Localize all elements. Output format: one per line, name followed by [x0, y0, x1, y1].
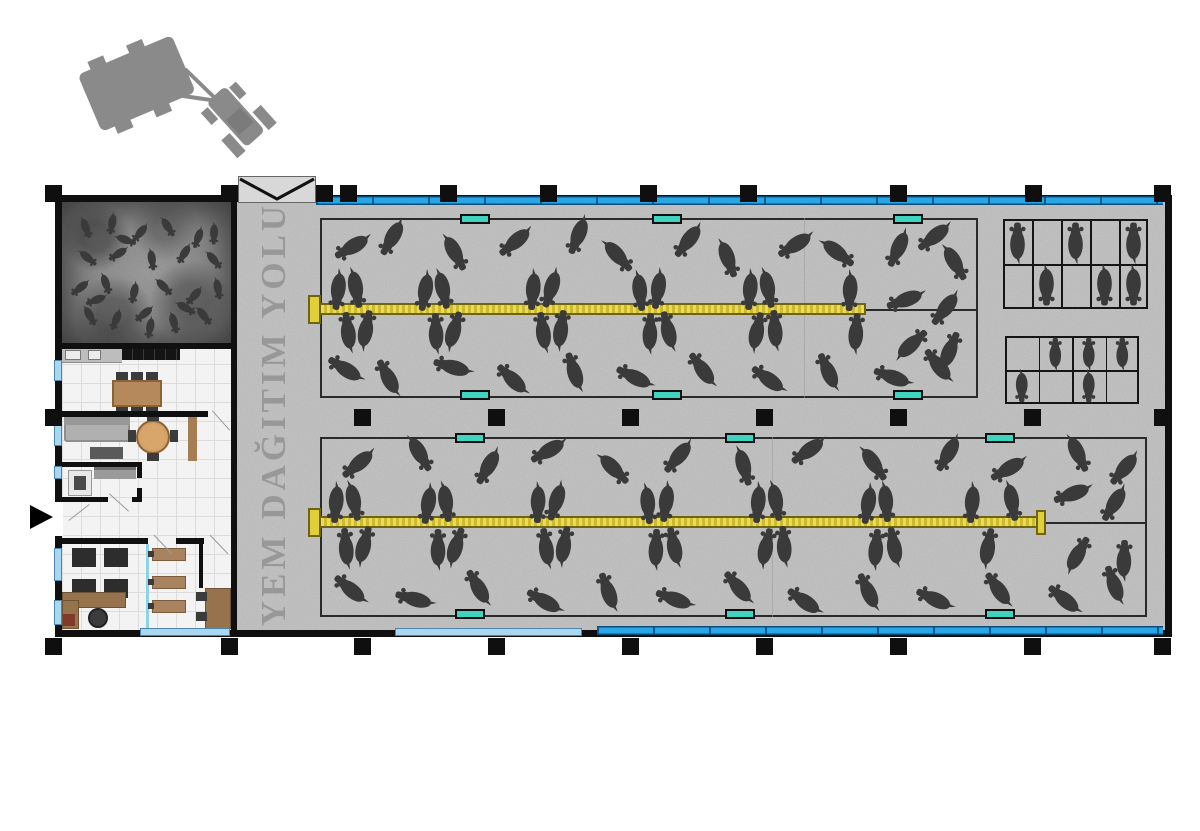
corridor-left-wall	[231, 202, 237, 630]
structural-column	[890, 638, 907, 655]
water-trough	[652, 214, 682, 224]
structural-column	[890, 185, 907, 202]
structural-column	[1025, 185, 1042, 202]
structural-column	[540, 185, 557, 202]
bathroom-wall-bottom-a	[62, 497, 108, 502]
structural-column	[1024, 638, 1041, 655]
storage-box	[63, 614, 75, 626]
bench-desk	[152, 600, 186, 613]
structural-column	[45, 638, 62, 655]
water-trough	[460, 214, 490, 224]
water-trough	[652, 390, 682, 400]
structural-column	[354, 638, 371, 655]
dining-chair	[131, 372, 143, 380]
structural-column	[756, 409, 773, 426]
round-table-chair	[170, 430, 178, 442]
cabinet-strip	[188, 417, 197, 461]
dining-chair	[146, 372, 158, 380]
pen-divider-lower	[1040, 522, 1147, 524]
toilet-lid	[74, 476, 86, 490]
structural-column	[45, 409, 62, 426]
wall-hall-office-a	[62, 538, 148, 544]
structural-column	[1024, 409, 1041, 426]
bathroom-wall-top	[62, 462, 142, 467]
water-trough	[460, 390, 490, 400]
dining-chair	[116, 372, 128, 380]
front-door-opening	[54, 502, 63, 536]
coffee-table	[90, 447, 123, 459]
office-table	[72, 548, 96, 567]
bench-seat	[148, 603, 154, 609]
water-trough	[893, 214, 923, 224]
structural-column	[221, 185, 238, 202]
kitchen-cabinets	[122, 349, 180, 360]
window-segment	[54, 360, 62, 381]
water-trough	[985, 433, 1015, 443]
structural-column	[340, 185, 357, 202]
bench-desk	[152, 576, 186, 589]
water-trough	[725, 433, 755, 443]
structural-column	[221, 638, 238, 655]
tractor-icon	[196, 77, 277, 159]
structural-column	[622, 409, 639, 426]
structural-column	[45, 185, 62, 202]
window-segment	[140, 628, 230, 636]
wall-calfroom-kitchen	[62, 343, 232, 349]
water-trough	[455, 433, 485, 443]
feed-road-gate	[238, 176, 316, 203]
water-trough	[725, 609, 755, 619]
entrance-arrow-icon	[30, 505, 53, 529]
pen-divider-upper	[866, 309, 978, 311]
water-trough	[455, 609, 485, 619]
stove-icon	[65, 350, 81, 360]
window-segment	[54, 600, 62, 625]
tractor-trailer-icon	[0, 0, 340, 180]
structural-column	[488, 409, 505, 426]
structural-column	[890, 409, 907, 426]
structural-column	[1154, 638, 1171, 655]
bench-seat	[148, 579, 154, 585]
gate-v-icon	[239, 177, 315, 202]
bench-seat	[148, 551, 154, 557]
sofa-back	[64, 417, 130, 425]
feed-line-lower	[316, 516, 1040, 528]
office-chair	[88, 608, 108, 628]
desk-chair	[196, 612, 207, 621]
structural-column	[1154, 185, 1171, 202]
side-desk	[205, 588, 231, 629]
structural-column	[488, 638, 505, 655]
desk-chair	[196, 592, 207, 601]
office-table	[104, 548, 128, 567]
round-table-chair	[147, 453, 159, 461]
structural-column	[1154, 409, 1171, 426]
bathroom-wall-right-a	[137, 462, 142, 478]
feed-line-upper	[316, 303, 866, 315]
structural-column	[440, 185, 457, 202]
wall-kitchen-living	[62, 411, 208, 417]
water-trough	[985, 609, 1015, 619]
structural-column	[354, 409, 371, 426]
window-band	[597, 626, 1163, 635]
calf-bedding-pen	[62, 202, 233, 343]
office-partition-wall	[199, 544, 203, 588]
window-segment	[395, 628, 582, 636]
dining-table	[112, 380, 162, 407]
water-trough	[893, 390, 923, 400]
structural-column	[316, 185, 333, 202]
bathroom-wall-bottom-b	[132, 497, 142, 502]
stall-divider	[1005, 370, 1139, 372]
stall-divider	[1003, 264, 1148, 266]
feed-road-label: YEM DAĞITIM YOLU	[254, 202, 294, 626]
window-segment	[54, 425, 62, 446]
feed-line-cap	[308, 295, 321, 324]
trailer-icon	[75, 28, 199, 140]
feed-line-cap	[308, 508, 321, 537]
round-table	[136, 420, 170, 454]
window-segment	[54, 466, 62, 479]
structural-column	[640, 185, 657, 202]
bathroom-counter	[94, 466, 136, 479]
structural-column	[622, 638, 639, 655]
round-table-chair	[128, 430, 136, 442]
feed-line-cap	[1036, 510, 1046, 535]
sink-icon	[88, 350, 101, 360]
drawbar-icon	[183, 70, 218, 101]
window-segment	[54, 548, 62, 581]
structural-column	[740, 185, 757, 202]
farm-barn-floor-plan: YEM DAĞITIM YOLU	[0, 0, 1200, 831]
structural-column	[756, 638, 773, 655]
